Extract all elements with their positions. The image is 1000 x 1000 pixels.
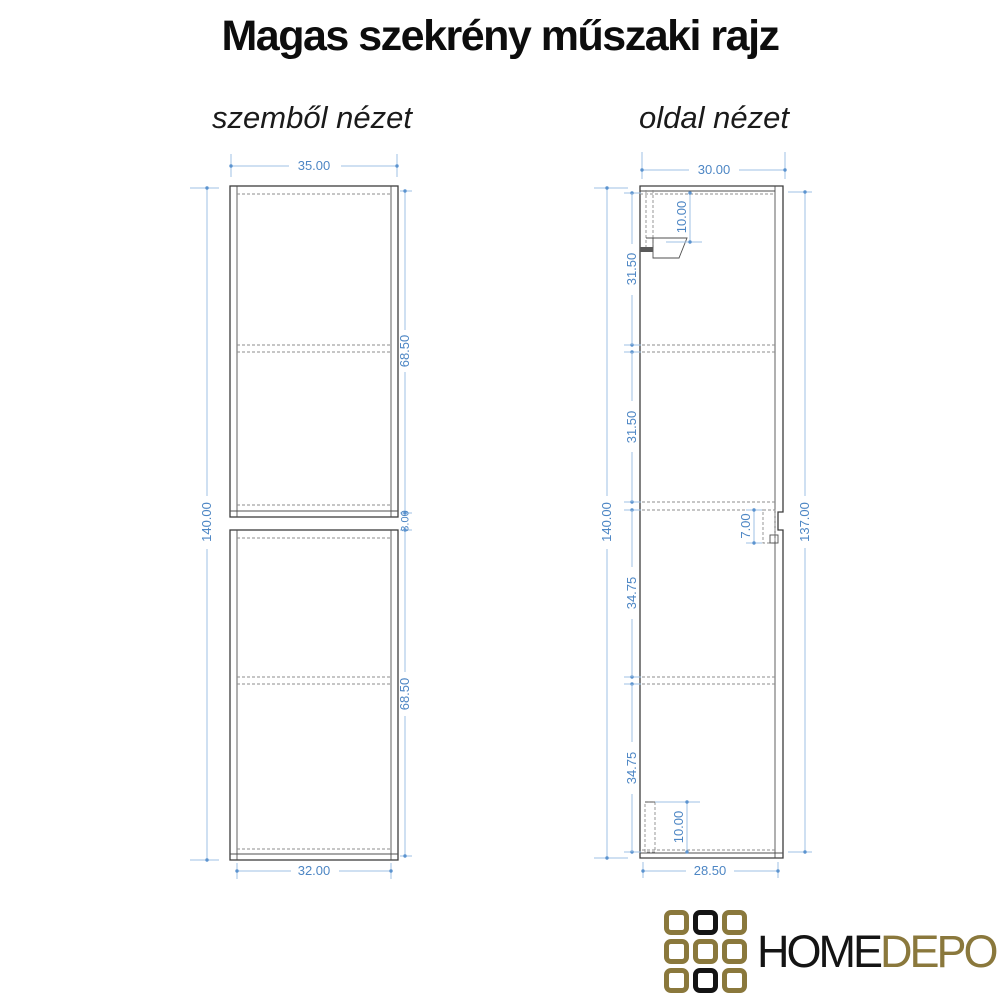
front-view-drawing: [230, 186, 398, 860]
logo-square-gold: [664, 910, 689, 935]
logo-square-black: [693, 968, 718, 993]
front-upper-shelf: [237, 345, 391, 352]
dim-front-total-height: 140.00: [199, 502, 214, 542]
side-view-dimensions: 30.00 140.00: [594, 152, 812, 878]
dim-side-section-1: 31.50: [624, 253, 639, 286]
side-cabinet-outline: [640, 186, 783, 858]
dim-side-bottom-depth: 28.50: [694, 863, 727, 878]
side-shelf-1: [642, 345, 775, 352]
dim-side-total-height: 140.00: [599, 502, 614, 542]
front-lower-shelf: [237, 677, 391, 684]
dim-side-top-depth: 30.00: [698, 162, 731, 177]
dim-side-top-bracket: 10.00: [674, 201, 689, 234]
logo-grid: [664, 910, 747, 993]
dim-front-bottom-width: 32.00: [298, 863, 331, 878]
front-lower-cabinet: [230, 530, 398, 860]
logo-square-gold: [664, 939, 689, 964]
logo-square-black: [693, 910, 718, 935]
dim-front-upper-height: 68.50: [397, 335, 412, 368]
logo-text-depo: DEPO: [880, 926, 996, 977]
dim-side-connector: 7.00: [738, 513, 753, 538]
technical-drawing-page: Magas szekrény műszaki rajz szemből néze…: [0, 0, 1000, 1000]
side-shelf-2: [642, 677, 775, 684]
homedepo-logo: HOMEDEPO: [664, 910, 996, 993]
logo-square-gold: [664, 968, 689, 993]
side-bottom-bracket: [645, 802, 655, 852]
front-upper-cabinet: [230, 186, 398, 517]
dim-front-lower-height: 68.50: [397, 678, 412, 711]
side-middle-connector: [763, 510, 778, 543]
logo-text: HOMEDEPO: [757, 926, 996, 978]
logo-square-gold: [722, 939, 747, 964]
dim-side-bottom-bracket: 10.00: [671, 811, 686, 844]
logo-text-home: HOME: [757, 926, 880, 977]
logo-square-gold: [722, 910, 747, 935]
dim-side-section-4: 34.75: [624, 752, 639, 785]
dim-side-right-height: 137.00: [797, 502, 812, 542]
drawing-canvas: 35.00 140.00 68.50 3.00 68.50: [0, 0, 1000, 1000]
dim-front-top-width: 35.00: [298, 158, 331, 173]
logo-square-gold: [722, 968, 747, 993]
side-view-drawing: [640, 186, 783, 858]
dim-side-section-3: 34.75: [624, 577, 639, 610]
dim-side-section-2: 31.50: [624, 411, 639, 444]
logo-square-gold: [693, 939, 718, 964]
